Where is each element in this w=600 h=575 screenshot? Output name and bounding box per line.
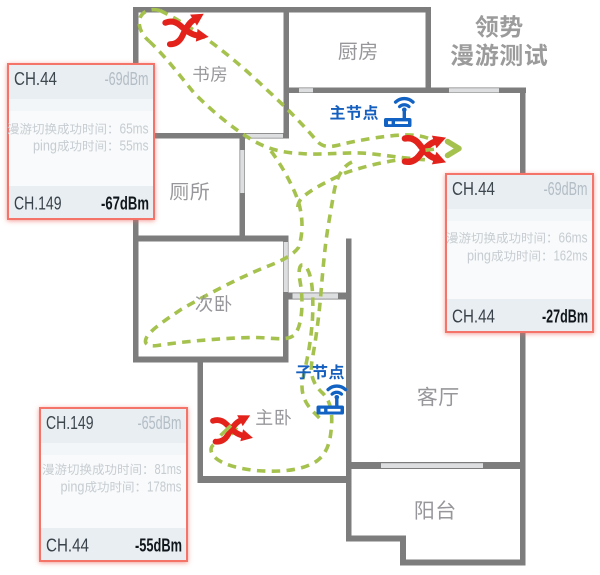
svg-text:CH.149: CH.149 — [46, 413, 94, 433]
svg-text:CH.44: CH.44 — [452, 307, 495, 327]
svg-text:-55dBm: -55dBm — [135, 535, 182, 556]
svg-text:178ms: 178ms — [147, 480, 182, 496]
svg-text:-65dBm: -65dBm — [138, 413, 182, 433]
svg-text:81ms: 81ms — [155, 462, 182, 478]
svg-text:-69dBm: -69dBm — [544, 179, 588, 199]
svg-text:-67dBm: -67dBm — [101, 193, 149, 214]
svg-text:ping: ping — [61, 480, 85, 496]
svg-text:65ms: 65ms — [120, 122, 149, 138]
svg-text:55ms: 55ms — [120, 139, 149, 155]
svg-text:ping: ping — [467, 249, 491, 265]
svg-text:162ms: 162ms — [554, 249, 588, 265]
svg-text:CH.44: CH.44 — [46, 536, 89, 556]
svg-text:66ms: 66ms — [559, 231, 588, 247]
svg-text:CH.149: CH.149 — [14, 194, 62, 214]
svg-text:-27dBm: -27dBm — [542, 306, 588, 327]
svg-text:CH.44: CH.44 — [14, 69, 57, 89]
svg-text:ping: ping — [33, 139, 57, 155]
svg-text:-69dBm: -69dBm — [105, 69, 149, 89]
svg-text:CH.44: CH.44 — [452, 179, 495, 199]
